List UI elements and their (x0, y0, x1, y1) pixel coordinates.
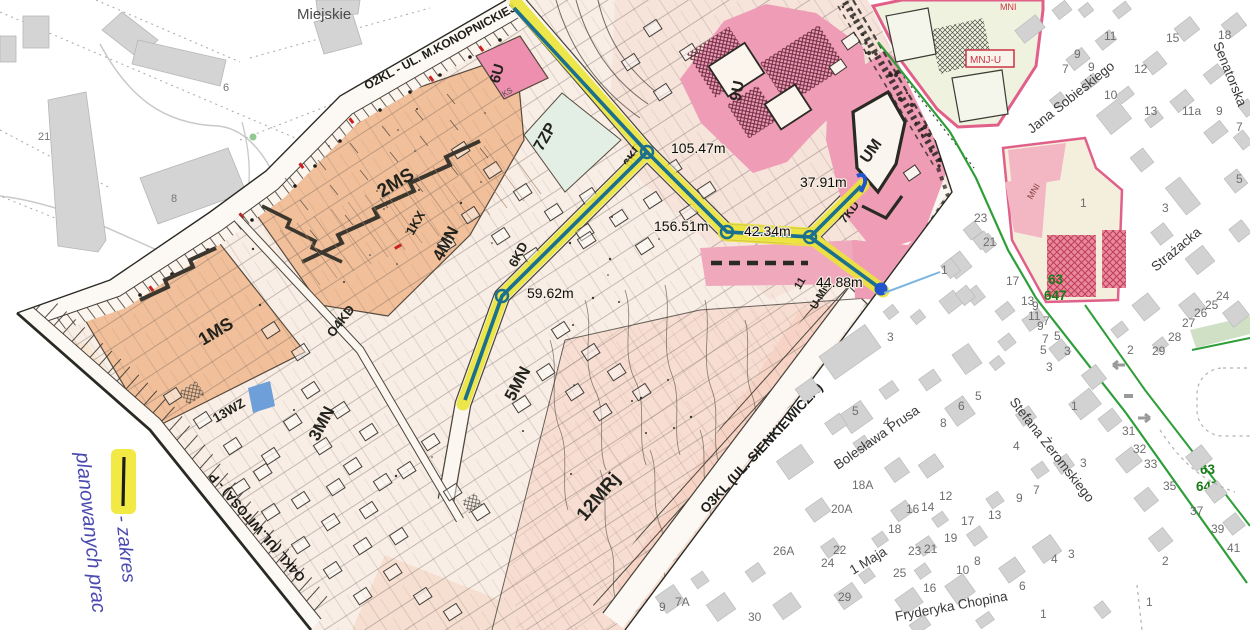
svg-text:16: 16 (923, 581, 937, 595)
svg-text:9: 9 (1016, 491, 1023, 505)
svg-text:22: 22 (833, 543, 847, 557)
svg-text:7: 7 (1236, 120, 1243, 134)
svg-text:8: 8 (940, 416, 947, 430)
svg-text:MNJ-U: MNJ-U (970, 55, 1001, 66)
svg-text:9: 9 (659, 600, 666, 614)
svg-text:33: 33 (1144, 457, 1158, 471)
svg-text:647: 647 (1044, 288, 1067, 303)
svg-text:14: 14 (921, 500, 935, 514)
svg-text:9: 9 (1032, 299, 1039, 313)
svg-text:29: 29 (1152, 344, 1166, 358)
svg-text:6: 6 (1019, 579, 1026, 593)
svg-text:6: 6 (958, 399, 965, 413)
svg-text:21: 21 (38, 131, 50, 143)
svg-text:15: 15 (1166, 31, 1180, 45)
svg-text:9: 9 (1074, 47, 1081, 61)
svg-text:12: 12 (939, 489, 953, 503)
svg-text:3: 3 (1162, 201, 1169, 215)
svg-text:20A: 20A (831, 502, 852, 516)
svg-text:5: 5 (1040, 343, 1047, 357)
svg-text:13: 13 (1144, 104, 1158, 118)
svg-text:1: 1 (1071, 399, 1078, 413)
svg-text:39: 39 (1211, 522, 1225, 536)
svg-text:1: 1 (1146, 595, 1153, 609)
svg-text:6: 6 (223, 82, 229, 94)
svg-text:3: 3 (1046, 360, 1053, 374)
svg-text:1: 1 (1080, 196, 1087, 210)
svg-text:31: 31 (1122, 424, 1136, 438)
svg-text:23: 23 (974, 211, 988, 225)
svg-text:35: 35 (1163, 479, 1177, 493)
svg-text:7A: 7A (675, 595, 690, 609)
svg-text:4: 4 (1051, 552, 1058, 566)
svg-text:7: 7 (1043, 314, 1050, 328)
svg-text:25: 25 (893, 566, 907, 580)
svg-text:3: 3 (1068, 547, 1075, 561)
svg-text:4: 4 (1013, 439, 1020, 453)
svg-text:3: 3 (1064, 344, 1071, 358)
svg-text:5: 5 (1236, 172, 1243, 186)
svg-text:21: 21 (924, 542, 938, 556)
svg-text:21: 21 (983, 235, 997, 249)
svg-text:10: 10 (956, 563, 970, 577)
svg-text:37.91m: 37.91m (800, 174, 847, 190)
svg-text:8: 8 (974, 554, 981, 568)
svg-text:10: 10 (1104, 88, 1118, 102)
svg-text:29: 29 (838, 590, 852, 604)
svg-text:11a: 11a (1182, 104, 1201, 118)
svg-text:19: 19 (944, 531, 958, 545)
svg-text:5: 5 (1054, 329, 1061, 343)
svg-text:18A: 18A (852, 478, 873, 492)
svg-text:37: 37 (1190, 504, 1204, 518)
svg-text:Miejskie: Miejskie (297, 6, 351, 23)
svg-text:28: 28 (1168, 330, 1182, 344)
svg-text:12: 12 (1134, 62, 1148, 76)
svg-text:1: 1 (1040, 607, 1047, 621)
svg-text:32: 32 (1133, 442, 1147, 456)
svg-text:59.62m: 59.62m (527, 285, 574, 301)
svg-text:156.51m: 156.51m (654, 218, 708, 234)
svg-text:26A: 26A (773, 544, 794, 558)
svg-text:23: 23 (908, 544, 922, 558)
svg-text:7: 7 (1033, 483, 1040, 497)
svg-text:3: 3 (1080, 456, 1087, 470)
svg-text:7: 7 (1062, 62, 1069, 76)
svg-text:16: 16 (906, 502, 920, 516)
svg-text:105.47m: 105.47m (671, 140, 725, 156)
svg-text:13: 13 (988, 508, 1002, 522)
svg-text:9: 9 (1216, 104, 1223, 118)
svg-text:5: 5 (852, 404, 859, 418)
svg-text:24: 24 (1216, 289, 1230, 303)
svg-text:63: 63 (1048, 272, 1064, 287)
svg-text:18: 18 (888, 522, 902, 536)
svg-text:2: 2 (1127, 343, 1134, 357)
svg-text:30: 30 (748, 610, 762, 624)
svg-text:MNI: MNI (1000, 2, 1017, 12)
svg-text:17: 17 (1006, 274, 1020, 288)
svg-text:2: 2 (1162, 554, 1169, 568)
svg-text:1: 1 (941, 263, 948, 277)
svg-text:24: 24 (821, 556, 835, 570)
svg-text:8: 8 (171, 193, 177, 205)
svg-text:5: 5 (975, 389, 982, 403)
svg-text:11: 11 (1104, 29, 1117, 43)
svg-text:44.88m: 44.88m (816, 274, 863, 290)
svg-text:42.34m: 42.34m (744, 223, 791, 239)
svg-text:17: 17 (961, 514, 975, 528)
svg-text:41: 41 (1227, 541, 1241, 555)
svg-text:3: 3 (887, 330, 894, 344)
